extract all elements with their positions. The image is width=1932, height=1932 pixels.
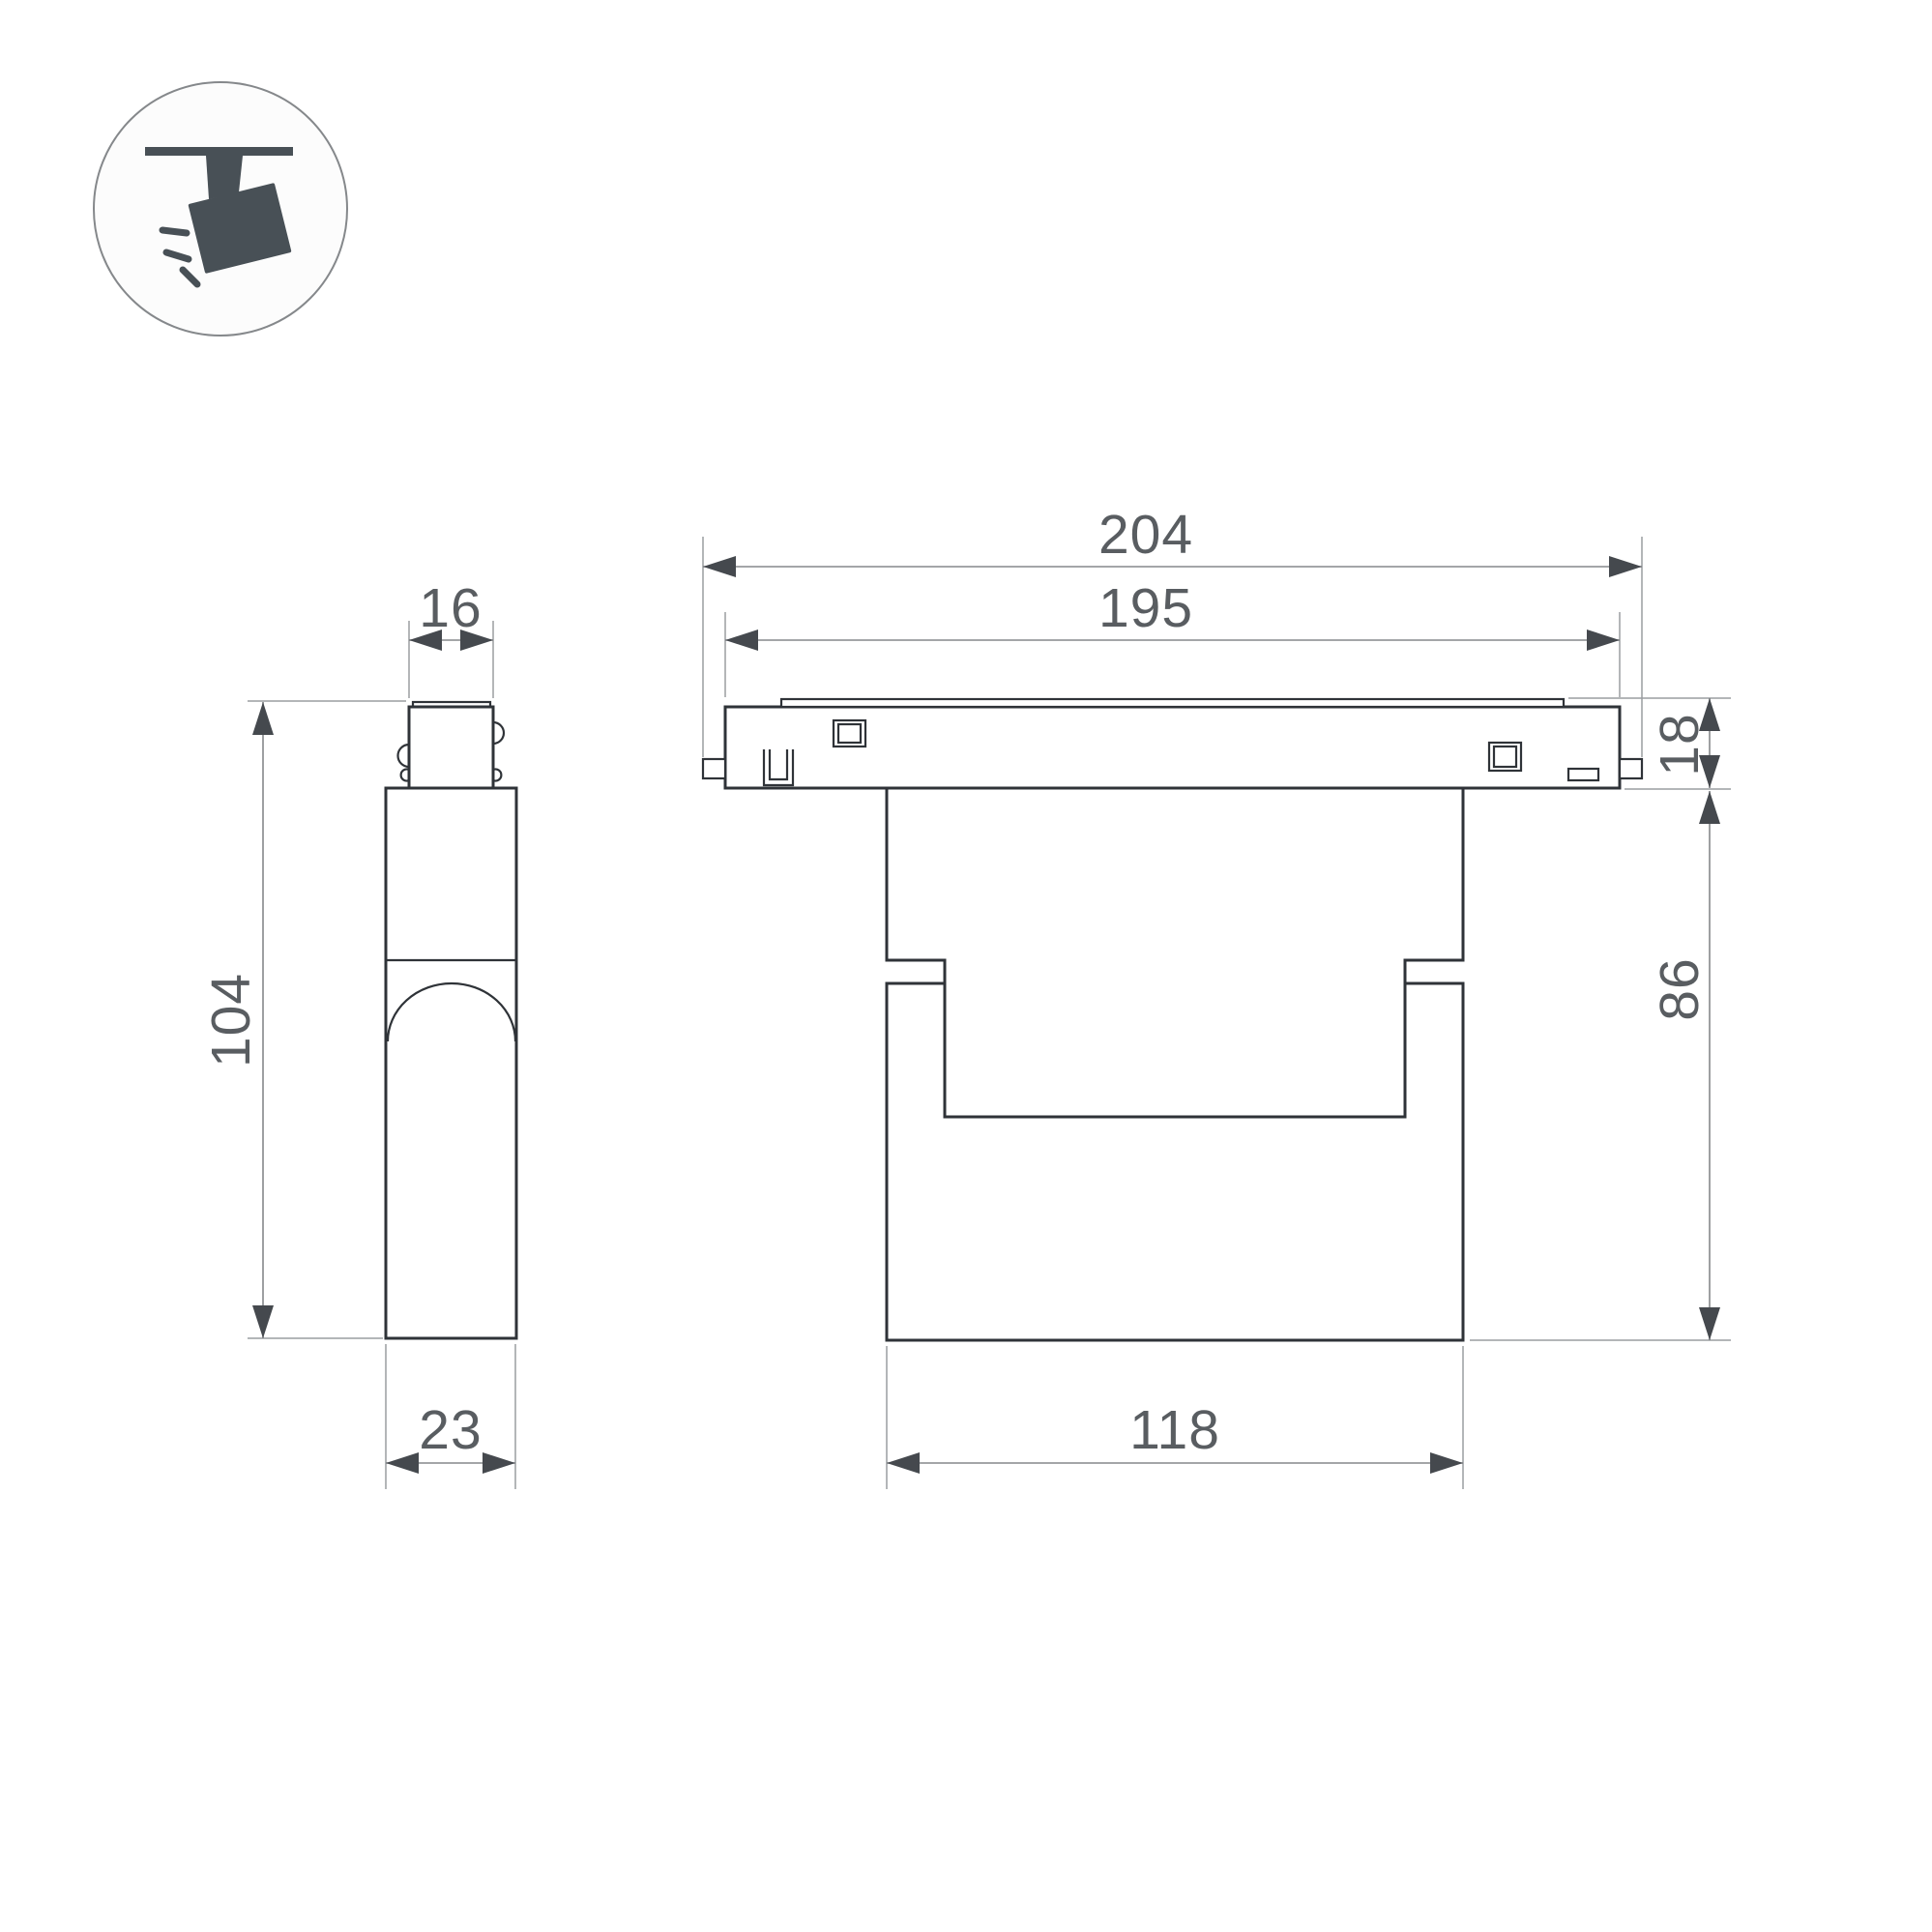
front-view-drawing: 204 195 18 86 <box>703 504 1731 1489</box>
track-spotlight-icon <box>94 82 347 336</box>
dimension-body-depth: 23 <box>386 1344 515 1489</box>
side-view-drawing: 16 104 23 <box>200 577 516 1489</box>
front-rail-tab-right <box>1620 759 1642 778</box>
dimension-label-86: 86 <box>1649 957 1711 1020</box>
front-body-upper <box>887 788 1463 1117</box>
technical-drawing-page: 16 104 23 <box>0 0 1932 1932</box>
side-adapter-clip-left <box>398 745 409 767</box>
dimension-label-118: 118 <box>1129 1399 1220 1461</box>
front-body-lower <box>887 983 1463 1340</box>
dimension-label-204: 204 <box>1098 504 1193 566</box>
icon-light-ray <box>162 230 187 233</box>
dimension-overall-height: 104 <box>200 701 406 1338</box>
side-adapter-clip-right <box>493 722 504 744</box>
dimension-label-16: 16 <box>419 577 482 639</box>
dimension-body-width: 118 <box>887 1346 1463 1489</box>
icon-track-bar <box>145 147 293 156</box>
dimension-adapter-width: 16 <box>409 577 493 698</box>
front-rail-top-plate <box>781 699 1564 707</box>
side-track-adapter <box>409 707 493 788</box>
front-rail-tab-left <box>703 759 725 778</box>
dimension-label-23: 23 <box>419 1399 482 1461</box>
dimension-body-height: 86 <box>1470 791 1731 1340</box>
side-body <box>386 788 516 1338</box>
dimension-label-104: 104 <box>200 973 262 1068</box>
dimension-label-195: 195 <box>1098 577 1193 639</box>
drawing-canvas: 16 104 23 <box>0 0 1932 1932</box>
dimension-rail-width: 195 <box>725 577 1620 697</box>
dimension-label-18: 18 <box>1649 713 1711 776</box>
